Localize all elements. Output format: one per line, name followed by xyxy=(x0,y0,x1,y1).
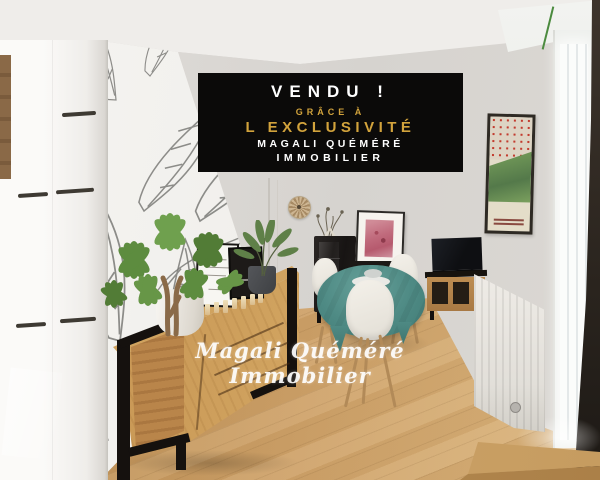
stand-leg xyxy=(430,311,434,320)
banner-sold-label: VENDU ! xyxy=(271,82,390,102)
banner-line-grace: GRÂCE À xyxy=(296,107,366,117)
vintage-wall-poster xyxy=(484,113,535,234)
money-tree-plant xyxy=(90,198,255,338)
banner-line-exclusivite: L EXCLUSIVITÉ xyxy=(246,119,416,136)
radiator-valve xyxy=(510,402,521,413)
photo-canvas: VENDU ! GRÂCE À L EXCLUSIVITÉ MAGALI QUÉ… xyxy=(0,0,600,480)
sideboard-leg xyxy=(176,436,186,470)
watermark-text: Magali Quéméré Immobilier xyxy=(150,338,450,388)
tv-screen xyxy=(431,237,482,273)
dining-chair-front xyxy=(346,280,394,340)
wood-shelf xyxy=(0,55,11,179)
bowl xyxy=(364,269,382,278)
sold-banner: VENDU ! GRÂCE À L EXCLUSIVITÉ MAGALI QUÉ… xyxy=(198,73,463,172)
banner-line-agent-name: MAGALI QUÉMÉRÉ xyxy=(257,138,403,150)
sideboard-frame xyxy=(117,340,130,480)
sideboard-shadow xyxy=(120,450,300,476)
wall-clock xyxy=(288,196,311,219)
dried-flowers xyxy=(313,206,347,238)
banner-line-immobilier: IMMOBILIER xyxy=(277,152,385,164)
